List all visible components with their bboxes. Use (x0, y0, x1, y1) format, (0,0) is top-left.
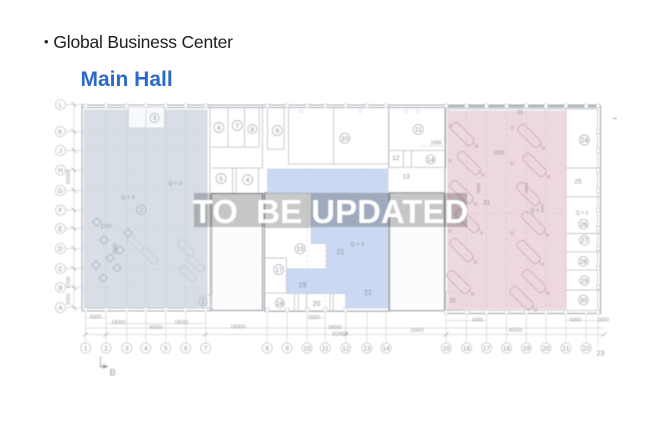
svg-text:2000: 2000 (113, 243, 119, 254)
svg-text:18000: 18000 (111, 320, 125, 326)
svg-text:J: J (59, 148, 62, 155)
svg-text:19: 19 (523, 345, 531, 352)
svg-text:14: 14 (427, 157, 435, 164)
svg-text:6000: 6000 (90, 315, 101, 321)
svg-text:10: 10 (341, 136, 349, 143)
svg-text:Q = 3: Q = 3 (350, 242, 364, 248)
svg-text:23: 23 (597, 351, 605, 358)
svg-text:20: 20 (542, 345, 550, 352)
svg-text:1000: 1000 (472, 318, 483, 324)
svg-text:1900: 1900 (493, 151, 504, 157)
svg-text:20: 20 (313, 301, 321, 308)
svg-text:C: C (58, 266, 63, 273)
svg-text:18: 18 (503, 345, 511, 352)
svg-text:B: B (110, 368, 116, 379)
svg-text:6: 6 (184, 345, 188, 352)
svg-text:15: 15 (443, 345, 451, 352)
svg-text:Q = 3: Q = 3 (121, 195, 135, 201)
svg-text:17: 17 (275, 267, 283, 274)
svg-text:13: 13 (363, 345, 371, 352)
svg-text:45000: 45000 (509, 328, 523, 334)
svg-text:7: 7 (204, 345, 208, 352)
svg-text:Q = 3: Q = 3 (576, 211, 589, 217)
svg-text:TO BE UPDATED: TO BE UPDATED (193, 193, 469, 230)
svg-text:L: L (59, 102, 63, 109)
svg-text:B: B (58, 285, 62, 292)
svg-text:Q = 3: Q = 3 (168, 181, 182, 187)
svg-text:E: E (58, 226, 62, 233)
svg-text:16: 16 (463, 345, 471, 352)
svg-text:38000: 38000 (328, 325, 342, 331)
svg-text:60000: 60000 (66, 170, 72, 184)
svg-text:6000: 6000 (66, 293, 72, 304)
svg-text:5: 5 (219, 176, 223, 183)
svg-text:D: D (58, 246, 63, 253)
svg-text:Q = 3: Q = 3 (530, 208, 544, 214)
svg-text:28: 28 (580, 259, 588, 266)
svg-text:G: G (58, 188, 63, 195)
svg-text:18000: 18000 (230, 325, 245, 331)
svg-text:2000: 2000 (308, 315, 319, 321)
svg-text:22: 22 (583, 345, 591, 352)
svg-text:7: 7 (235, 123, 239, 130)
svg-text:F: F (59, 207, 63, 214)
svg-text:27: 27 (581, 238, 589, 245)
svg-text:25: 25 (574, 179, 582, 186)
svg-text:1000: 1000 (430, 141, 441, 147)
svg-text:18000: 18000 (174, 320, 188, 326)
svg-text:3: 3 (125, 345, 129, 352)
svg-text:4: 4 (246, 177, 250, 184)
svg-text:9: 9 (285, 345, 289, 352)
svg-text:24: 24 (581, 138, 589, 145)
svg-text:12: 12 (392, 155, 400, 162)
svg-text:36000: 36000 (149, 325, 163, 331)
svg-text:30: 30 (580, 297, 588, 304)
svg-text:4: 4 (144, 345, 148, 352)
svg-text:31: 31 (483, 200, 491, 207)
svg-text:15: 15 (296, 246, 304, 253)
svg-text:21: 21 (562, 345, 570, 352)
svg-text:18400: 18400 (410, 328, 424, 334)
svg-text:11: 11 (322, 345, 329, 352)
svg-text:13: 13 (402, 173, 410, 180)
svg-text:23: 23 (517, 111, 523, 117)
svg-text:11: 11 (415, 127, 422, 134)
svg-text:21: 21 (337, 249, 345, 256)
svg-text:22: 22 (364, 290, 372, 297)
svg-text:32: 32 (449, 299, 456, 305)
svg-text:1: 1 (84, 345, 88, 352)
svg-text:2700: 2700 (100, 224, 111, 230)
svg-text:9: 9 (275, 128, 279, 135)
svg-text:8: 8 (265, 345, 269, 352)
svg-text:6000: 6000 (66, 276, 72, 287)
svg-text:29: 29 (581, 278, 589, 285)
svg-text:18: 18 (276, 300, 284, 307)
svg-text:5: 5 (164, 345, 168, 352)
svg-text:26: 26 (580, 221, 588, 228)
svg-text:H: H (58, 167, 63, 174)
svg-text:14: 14 (382, 345, 390, 352)
svg-text:6000: 6000 (570, 318, 581, 324)
svg-text:19: 19 (299, 282, 307, 289)
svg-text:153600: 153600 (332, 332, 349, 338)
svg-text:3000: 3000 (598, 318, 609, 324)
svg-text:10: 10 (304, 345, 312, 352)
svg-text:8: 8 (251, 126, 255, 133)
svg-text:12: 12 (342, 345, 350, 352)
svg-text:6000: 6000 (476, 182, 481, 193)
svg-text:6: 6 (217, 125, 221, 132)
svg-text:17: 17 (483, 345, 491, 352)
svg-text:2: 2 (104, 345, 108, 352)
